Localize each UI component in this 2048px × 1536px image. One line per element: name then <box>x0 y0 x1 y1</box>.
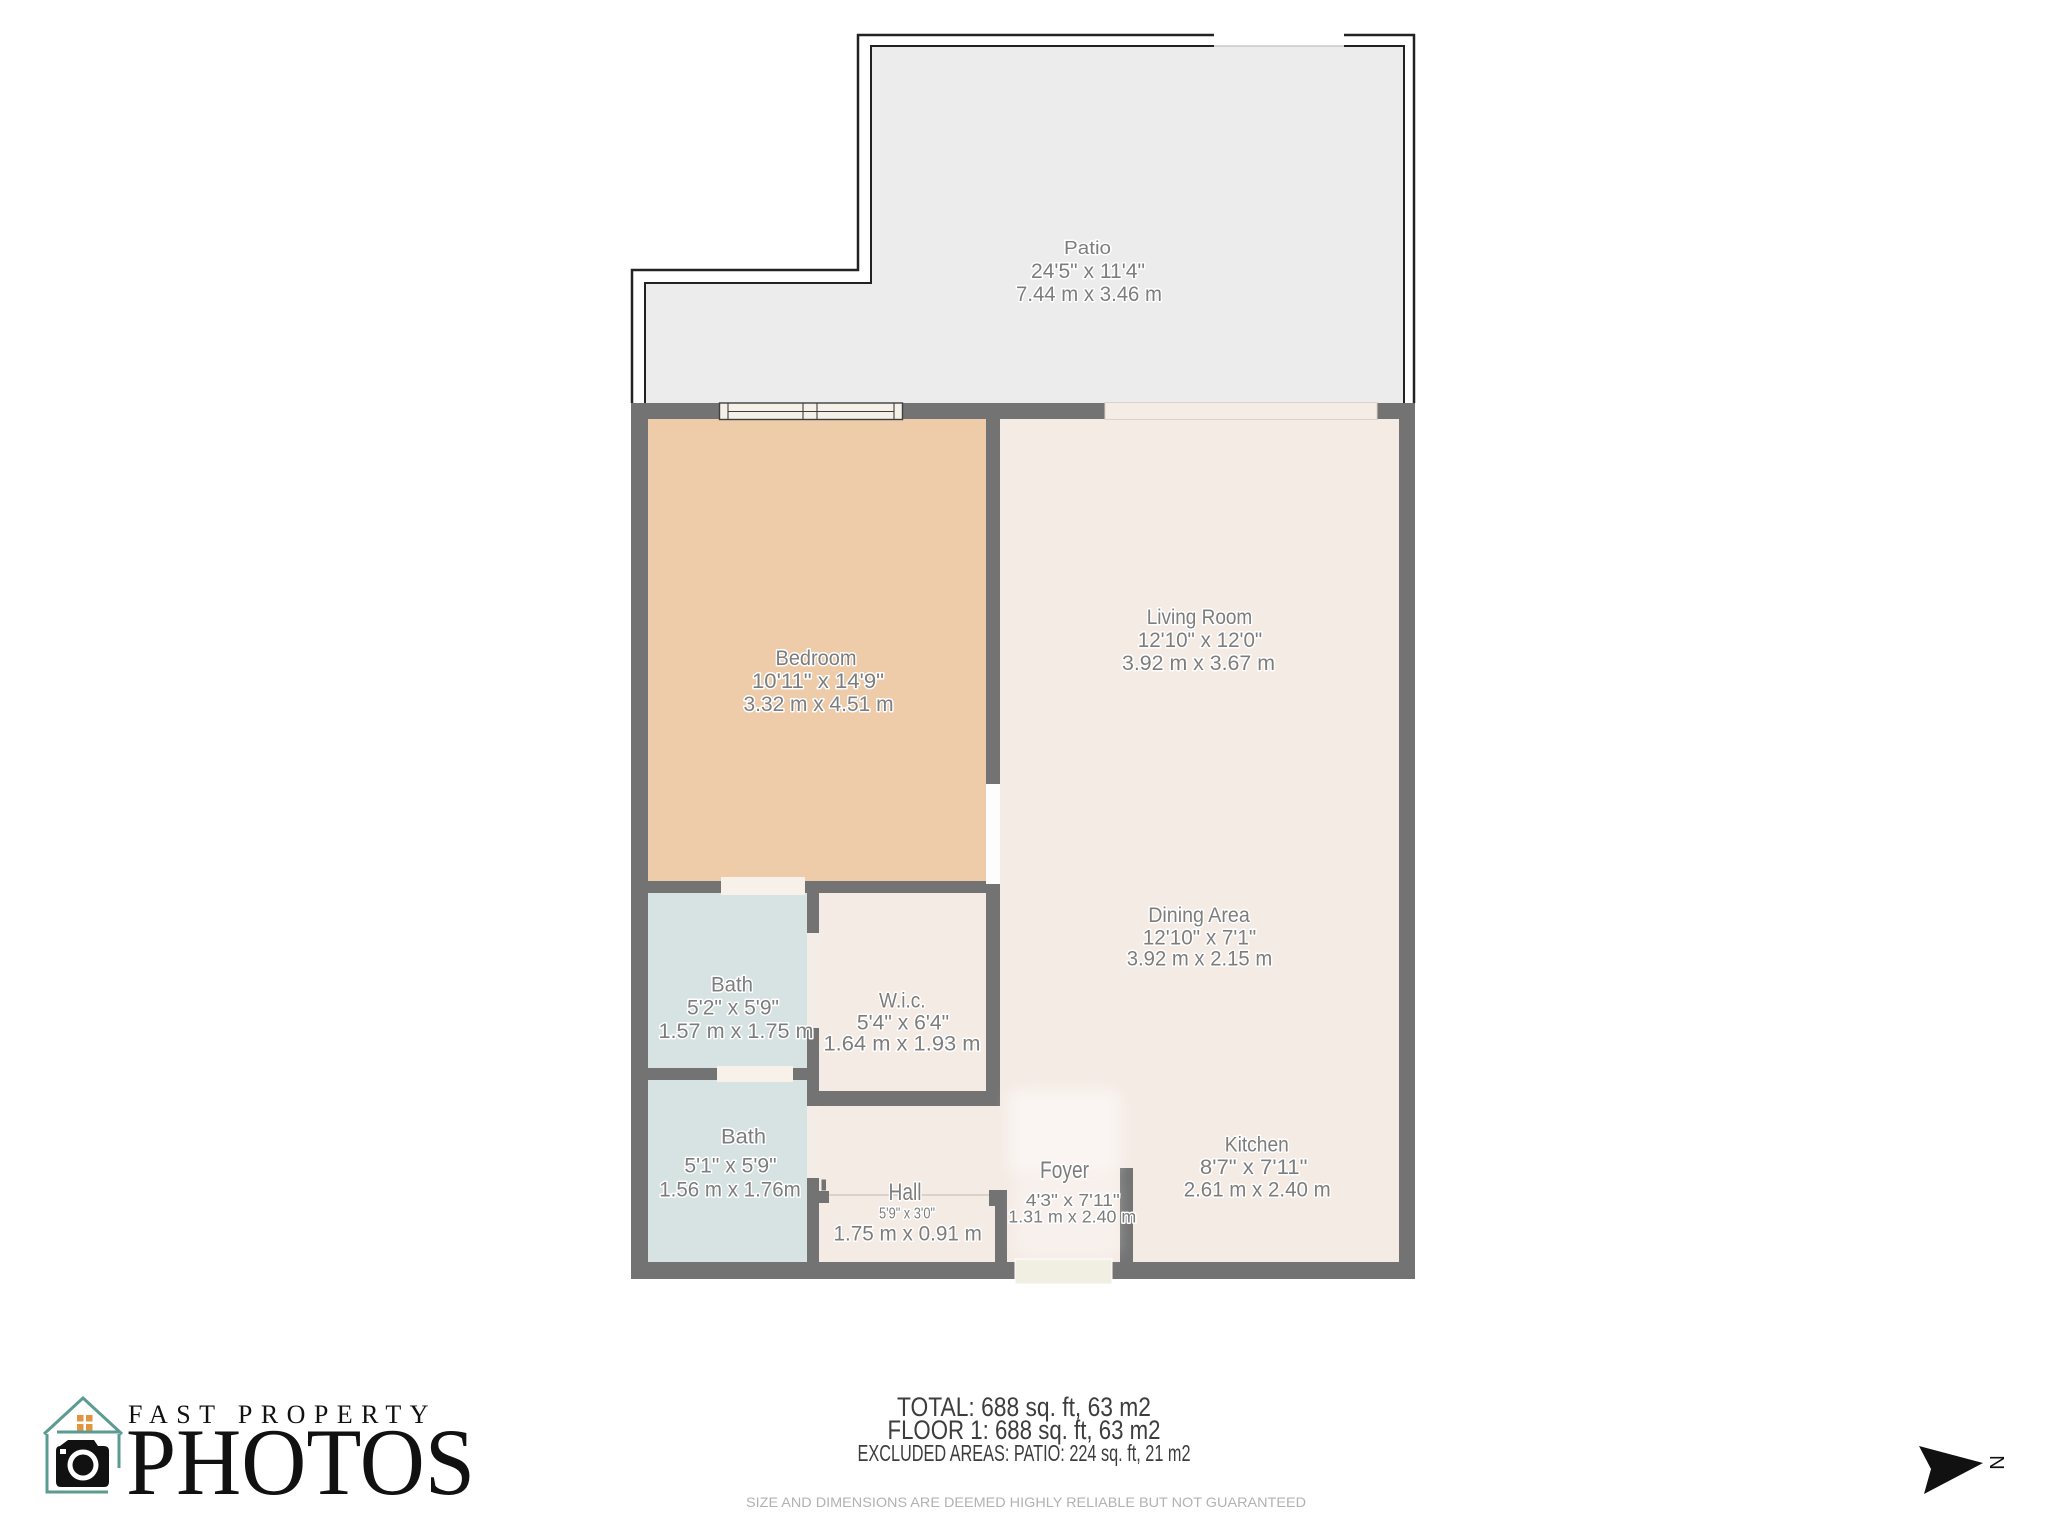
svg-text:Patio: Patio <box>1064 238 1111 258</box>
svg-text:1.57 m x 1.75 m: 1.57 m x 1.75 m <box>659 1019 814 1043</box>
svg-text:EXCLUDED AREAS: PATIO: 224 sq.: EXCLUDED AREAS: PATIO: 224 sq. ft, 21 m2 <box>858 1440 1191 1466</box>
svg-text:2.61 m x 2.40 m: 2.61 m x 2.40 m <box>1184 1177 1331 1201</box>
svg-text:Bedroom: Bedroom <box>776 646 857 670</box>
svg-text:10'11" x 14'9": 10'11" x 14'9" <box>752 669 884 693</box>
svg-text:Hall: Hall <box>889 1179 922 1206</box>
svg-text:N: N <box>1985 1455 2007 1469</box>
svg-text:7.44 m x 3.46 m: 7.44 m x 3.46 m <box>1016 282 1162 306</box>
svg-text:5'2" x 5'9": 5'2" x 5'9" <box>687 996 779 1020</box>
svg-text:Foyer: Foyer <box>1040 1157 1089 1184</box>
svg-text:Bath: Bath <box>711 973 753 997</box>
svg-text:Living Room: Living Room <box>1147 605 1253 629</box>
svg-text:SIZE AND DIMENSIONS ARE DEEMED: SIZE AND DIMENSIONS ARE DEEMED HIGHLY RE… <box>746 1494 1306 1510</box>
svg-text:5'1" x 5'9": 5'1" x 5'9" <box>684 1154 776 1178</box>
svg-text:PHOTOS: PHOTOS <box>126 1409 475 1515</box>
svg-text:3.92 m x 3.67 m: 3.92 m x 3.67 m <box>1122 651 1275 675</box>
svg-text:12'10" x 12'0": 12'10" x 12'0" <box>1138 628 1263 652</box>
svg-text:3.92 m x 2.15 m: 3.92 m x 2.15 m <box>1127 947 1273 971</box>
svg-text:1.75 m x 0.91 m: 1.75 m x 0.91 m <box>833 1221 982 1245</box>
svg-text:3.32 m x 4.51 m: 3.32 m x 4.51 m <box>744 692 894 716</box>
svg-text:1.31 m x 2.40 m: 1.31 m x 2.40 m <box>1008 1206 1136 1226</box>
svg-text:1.56 m x 1.76m: 1.56 m x 1.76m <box>659 1178 801 1202</box>
svg-text:24'5" x 11'4": 24'5" x 11'4" <box>1031 259 1145 283</box>
svg-text:Kitchen: Kitchen <box>1225 1133 1289 1157</box>
svg-text:1.64 m x 1.93 m: 1.64 m x 1.93 m <box>824 1032 981 1056</box>
svg-text:5'9" x 3'0": 5'9" x 3'0" <box>879 1206 935 1223</box>
svg-text:W.i.c.: W.i.c. <box>879 989 926 1013</box>
svg-text:Dining Area: Dining Area <box>1148 903 1250 927</box>
svg-text:8'7" x 7'11": 8'7" x 7'11" <box>1200 1155 1308 1179</box>
svg-text:Bath: Bath <box>721 1125 766 1149</box>
